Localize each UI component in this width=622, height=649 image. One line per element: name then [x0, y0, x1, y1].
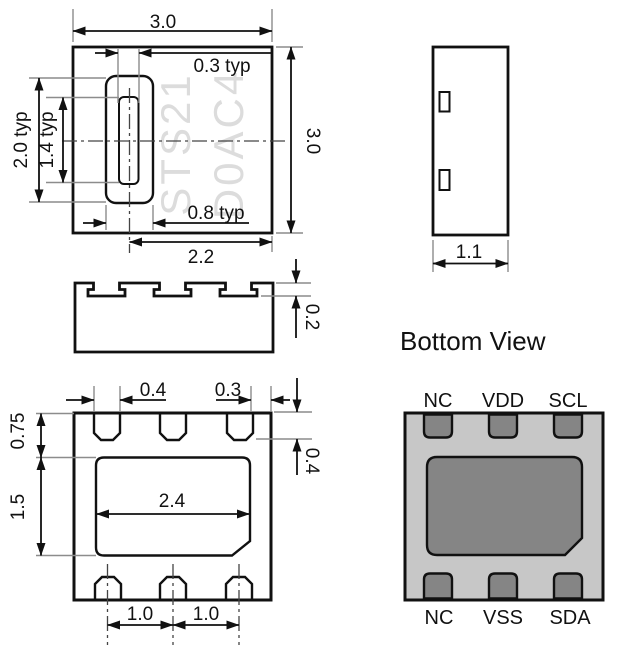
dim-die-pad-height: 1.5 [8, 494, 29, 520]
dim-edge-to-die-pad: 0.75 [8, 413, 29, 450]
end-view-outline [433, 47, 508, 235]
dim-edge-gap: 0.3 [215, 380, 241, 401]
ext-lines-body-height [276, 47, 303, 233]
marking-text-line2: D0AC4 [205, 69, 252, 219]
dim-center-to-edge: 2.2 [188, 247, 214, 268]
marking-text-line1: STS21 [152, 72, 199, 215]
dim-pad-length: 0.4 [301, 448, 322, 475]
footprint-view: 2.4 0.75 1.5 0.4 0.3 0.4 1.0 1.0 [8, 378, 322, 645]
dim-body-thickness: 1.1 [456, 242, 482, 263]
drawing-svg: STS21 D0AC4 3.0 3.0 0.3 typ 0.8 typ 2.2 [0, 0, 622, 649]
bottom-view-pad-sda [554, 574, 582, 599]
pin-label-vss: VSS [483, 607, 523, 629]
side-view-outline [75, 283, 273, 352]
pin-label-scl: SCL [549, 390, 588, 412]
end-view: 1.1 [433, 47, 508, 272]
dim-pad-depth: 0.2 [301, 304, 322, 330]
dim-opening-height: 2.0 typ [11, 111, 32, 168]
dim-slit-height: 1.4 typ [37, 111, 58, 168]
side-view: 0.2 [75, 259, 322, 352]
bottom-view-pad-scl [554, 415, 582, 438]
top-view: STS21 D0AC4 3.0 3.0 0.3 typ 0.8 typ 2.2 [11, 9, 323, 268]
bottom-view-pad-nc-top [424, 415, 452, 438]
dim-opening-width: 0.8 typ [187, 203, 244, 224]
bottom-view-die-pad [427, 457, 582, 555]
dim-pad-width: 0.4 [140, 380, 167, 401]
dim-body-height: 3.0 [302, 128, 323, 154]
pin-label-vdd: VDD [482, 390, 524, 412]
dim-pitch-left: 1.0 [127, 604, 153, 625]
ext-lines-edge-gap [251, 386, 271, 411]
bottom-view-pad-vdd [489, 415, 517, 438]
dim-pitch-right: 1.0 [193, 604, 219, 625]
bottom-view-pad-nc-bottom [424, 574, 452, 599]
ext-lines-pad-width [94, 386, 120, 411]
bottom-view: Bottom View NC VDD SCL NC VSS SDA [400, 326, 603, 629]
pin-label-nc-bottom: NC [425, 607, 454, 629]
dim-body-width: 3.0 [150, 12, 176, 33]
dim-slit-width: 0.3 typ [193, 56, 250, 77]
bottom-view-title: Bottom View [400, 326, 546, 356]
package-dimension-drawing: STS21 D0AC4 3.0 3.0 0.3 typ 0.8 typ 2.2 [0, 0, 622, 649]
pin-label-sda: SDA [549, 607, 591, 629]
bottom-view-pad-vss [489, 574, 517, 599]
pin-label-nc-top: NC [424, 390, 453, 412]
dim-die-pad-width: 2.4 [159, 491, 186, 512]
